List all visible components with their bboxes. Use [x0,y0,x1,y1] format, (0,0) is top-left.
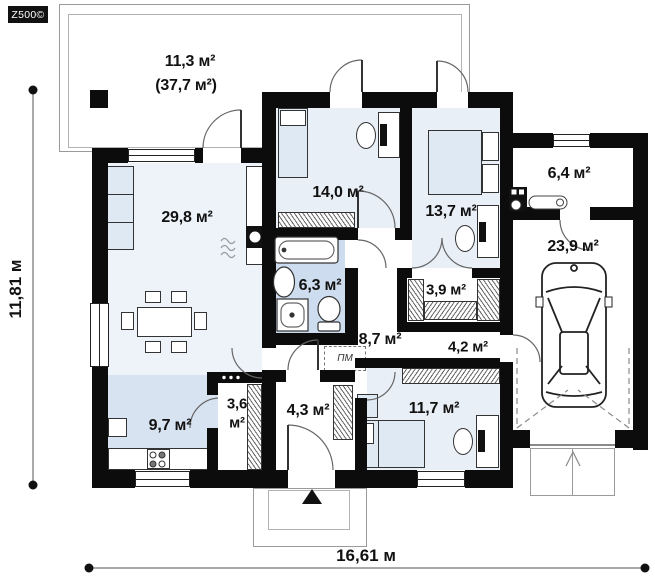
pillow [482,164,499,193]
wall-segment [320,370,355,382]
wall-segment [253,470,288,488]
monitor-icon [380,124,387,146]
dimension-endpoint [641,564,650,573]
terrace-column [90,90,108,108]
dining-chair [145,291,161,303]
dining-chair [121,312,134,330]
dimension-endpoint [29,86,38,95]
car-body [542,263,606,407]
wardrobe-hatch [278,212,355,228]
kitchen-floor [108,375,218,448]
room-label-kitchen: 9,7 м² [149,417,192,435]
room-label-hallway: 8,7 м² [359,331,402,349]
wall-segment [468,92,513,108]
window [135,471,190,487]
wall-segment [400,108,412,238]
office-chair [455,225,475,252]
car-trunk-line [546,392,602,396]
dining-table [137,307,192,337]
room-label-living: 29,8 м² [161,209,212,227]
car-mirror [536,297,543,307]
window [128,149,195,162]
wall-segment [397,268,407,332]
pantry-area-value: 3,6 [227,395,247,414]
room-label-terrace-total: (37,7 м²) [155,77,217,95]
room-label-pantry: 3,6 м² [227,395,247,433]
window [417,471,465,487]
wall-segment [362,92,437,108]
wardrobe-hatch [408,279,424,321]
wall-segment [465,470,513,488]
car-mirror [605,297,612,307]
wall-segment [190,470,253,488]
monitor-icon [479,222,486,242]
entrance-porch-step [268,490,350,530]
kitchen-stove [147,449,170,469]
car-rear-window [586,366,600,384]
wall-segment [335,470,417,488]
door-arc [513,335,540,362]
sofa [106,166,134,250]
wardrobe-hatch [402,368,500,384]
wall-segment [262,333,358,345]
wall-segment [262,370,286,382]
dimension-endpoint [85,564,94,573]
dimension-height-label: 11,81 м [6,260,26,319]
wall-segment [92,148,108,303]
wall-segment [513,207,560,220]
kitchen-side-table [108,418,127,437]
wall-segment [407,322,500,332]
wall-segment [92,148,128,163]
pillow [280,110,306,126]
room-label-terrace: 11,3 м² [165,53,215,71]
floor-plan: ПМ [0,0,655,585]
brand-logo: Z500© [8,6,48,23]
car-windshield [586,298,600,332]
wall-segment [500,108,513,335]
window [90,303,109,367]
wall-segment [590,207,633,220]
car-emblem [571,265,577,271]
wardrobe-hatch [477,279,500,321]
bed-double [428,130,482,195]
office-chair [453,428,473,455]
dimension-endpoint [29,481,38,490]
room-label-utility: 6,4 м² [548,165,591,183]
dining-chair [194,312,207,330]
car-hood-line [546,287,602,292]
water-heater-cap [557,199,564,206]
wall-segment [207,372,262,383]
garage-gate [530,444,615,446]
wall-segment [207,428,218,470]
dining-chair [171,291,187,303]
window [553,134,590,147]
washing-machine-label: ПМ [337,353,353,364]
office-chair [356,122,376,149]
brand-logo-text: Z500© [11,9,44,21]
wall-segment [276,228,358,240]
wall-segment [262,108,276,348]
wall-segment [355,358,500,368]
wall-segment [615,430,648,448]
parking-mark [578,390,629,428]
wall-segment [241,148,262,163]
car-roof [560,332,588,374]
monitor-icon [478,430,485,452]
car-rear-window [548,366,562,384]
wall-segment [262,92,330,108]
pantry-area-unit: м² [227,414,247,433]
closet-hatch [333,385,353,440]
dining-chair [145,341,161,353]
wall-segment [355,398,367,470]
wardrobe-hatch [424,301,477,320]
car-windshield [548,298,562,332]
room-label-bedroom-right: 13,7 м² [425,203,476,221]
boiler-dial [519,190,524,195]
driveway-center-line [572,448,573,496]
room-label-bedroom-bottom: 11,7 м² [409,400,459,418]
wall-segment [195,148,203,163]
room-label-vestibule: 4,3 м² [287,402,330,420]
wall-segment [472,268,500,278]
wall-segment [500,362,513,470]
room-label-garage: 23,9 м² [547,238,598,256]
dining-chair [171,341,187,353]
wall-segment [92,470,135,488]
room-label-bathroom: 6,3 м² [299,277,342,295]
wall-segment [633,133,648,450]
pillow [482,132,499,161]
room-label-bedroom-top: 14,0 м² [312,184,363,202]
room-label-corridor: 4,2 м² [448,339,488,356]
room-label-wardrobe: 3,9 м² [426,282,466,299]
pantry-shelving-hatch [247,384,262,470]
wall-segment [262,382,276,470]
dimension-width-label: 16,61 м [336,546,396,566]
parking-mark [517,390,568,428]
